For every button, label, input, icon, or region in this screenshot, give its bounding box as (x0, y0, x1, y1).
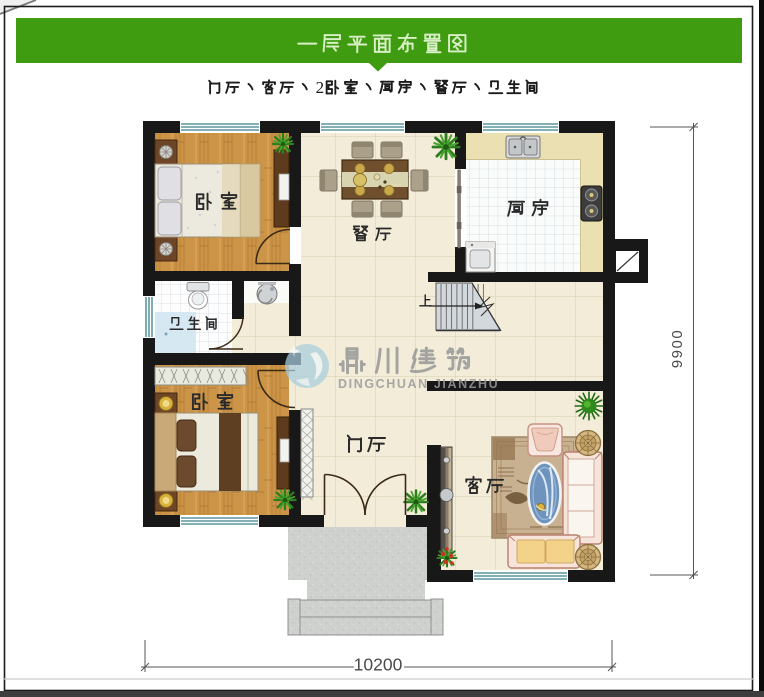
svg-text:DINGCHUAN JIANZHU: DINGCHUAN JIANZHU (338, 377, 499, 391)
svg-text:9900: 9900 (669, 329, 686, 368)
svg-text:10200: 10200 (354, 655, 403, 675)
svg-text:2: 2 (316, 78, 325, 97)
